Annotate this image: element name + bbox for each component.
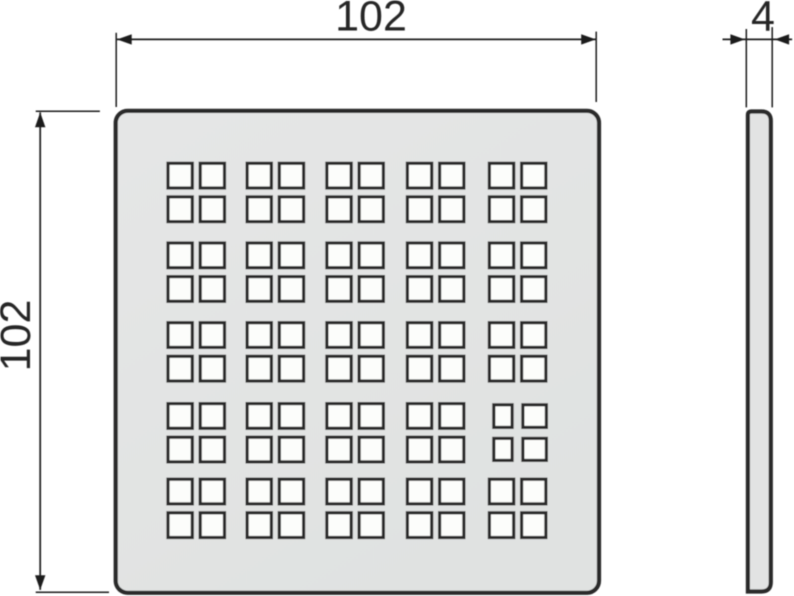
- svg-text:102: 102: [0, 300, 40, 372]
- svg-text:102: 102: [335, 0, 407, 41]
- svg-text:4: 4: [751, 0, 775, 40]
